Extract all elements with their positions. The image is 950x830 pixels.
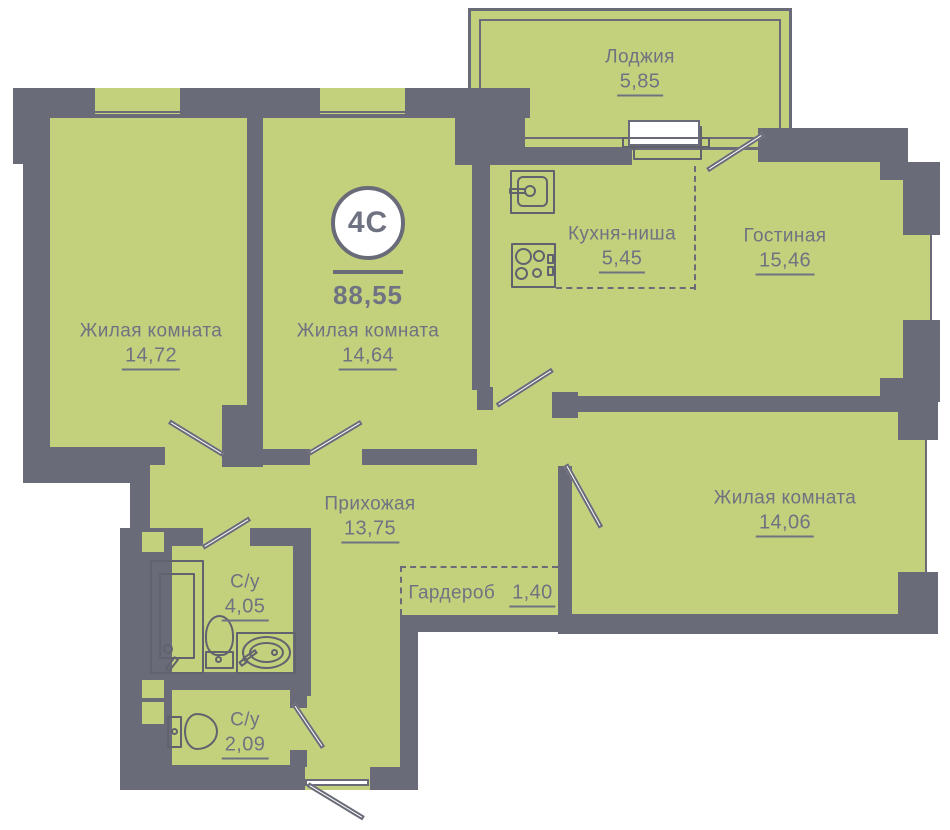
wall-outer-top xyxy=(13,88,530,118)
window-sill-line xyxy=(95,111,180,113)
wall-kitchen-left xyxy=(472,155,490,390)
room-area: 14,72 xyxy=(122,344,180,371)
shaft-niche xyxy=(142,702,164,724)
window-living xyxy=(903,235,932,320)
toilet-button xyxy=(215,656,222,663)
wall-under-loggia xyxy=(490,148,632,165)
room-name: Жилая комната xyxy=(714,487,856,511)
room-name: Жилая комната xyxy=(297,320,439,344)
room-area: 13,75 xyxy=(341,517,399,544)
loggia-appliance-icon xyxy=(628,120,700,146)
wall-bathroom-divider xyxy=(150,672,310,690)
stove-burner xyxy=(533,250,545,262)
wall-bathroom-top-right xyxy=(250,528,311,546)
room-area: 14,64 xyxy=(339,344,397,371)
loggia-appliance-line xyxy=(630,137,698,139)
kitchen-niche-dashed-right xyxy=(694,166,696,290)
room-label-bathroom: С/у 4,05 xyxy=(222,571,269,622)
wall-outer-bottom-right xyxy=(370,767,418,790)
room-area: 15,46 xyxy=(756,249,814,276)
wall-living-bedroom3 xyxy=(556,396,905,412)
wall-outer-left-upper xyxy=(13,88,50,164)
room-label-bedroom2: Жилая комната 14,64 xyxy=(297,320,439,371)
wall-outer-left xyxy=(23,160,50,450)
wall-wardrobe-bottom xyxy=(400,615,560,632)
wall-kitchen-pillar xyxy=(477,387,493,410)
washbasin-drain xyxy=(271,649,278,656)
room-name: С/у xyxy=(222,709,269,733)
stove-knob xyxy=(547,266,554,276)
window-outer-gap xyxy=(927,440,938,572)
wall-bedroom-divider xyxy=(247,118,263,410)
shaft-niche xyxy=(142,680,164,698)
room-area: 5,45 xyxy=(599,247,646,274)
room-area: 4,05 xyxy=(222,595,269,622)
room-name: Лоджия xyxy=(605,46,675,70)
room-label-living: Гостиная 15,46 xyxy=(744,225,827,276)
room-area: 2,09 xyxy=(222,733,269,760)
room-label-loggia: Лоджия 5,85 xyxy=(605,46,675,97)
room-label-toiletroom: С/у 2,09 xyxy=(222,709,269,760)
stove-burner xyxy=(515,248,532,265)
room-name: Жилая комната xyxy=(80,320,222,344)
badge-divider-line xyxy=(333,270,403,274)
room-name: Гостиная xyxy=(744,225,827,249)
room-label-bedroom3: Жилая комната 14,06 xyxy=(714,487,856,538)
room-area: 5,85 xyxy=(617,70,664,97)
wall-bedroom2-right xyxy=(470,118,490,158)
floor-plan: Лоджия 5,85 Кухня-ниша 5,45 Гостиная 15,… xyxy=(0,0,950,830)
room-label-hallway: Прихожая 13,75 xyxy=(324,493,415,544)
apartment-type-badge: 4С 88,55 xyxy=(318,186,418,311)
wall-hallway-top xyxy=(362,449,477,465)
shaft-niche xyxy=(142,532,164,552)
room-name: Кухня-ниша xyxy=(568,223,676,247)
wall-toiletroom-stub-bottom xyxy=(290,750,307,767)
type-circle: 4С xyxy=(331,186,405,260)
bathtub-drain xyxy=(163,644,173,654)
wall-left-lower xyxy=(130,483,150,533)
wall-bedroom3-bottom xyxy=(558,614,938,634)
window-outer-gap xyxy=(932,235,940,320)
stove-burner xyxy=(515,267,528,280)
room-label-bedroom1: Жилая комната 14,72 xyxy=(80,320,222,371)
wall-bedroom-divider-stub xyxy=(222,405,263,467)
room-area: 14,06 xyxy=(756,511,814,538)
stove-burner xyxy=(532,268,542,278)
room-name: Прихожая xyxy=(324,493,415,517)
room-label-wardrobe: Гардероб 1,40 xyxy=(408,581,555,608)
wall-bedroom1-bottom xyxy=(50,447,165,465)
stove-knob xyxy=(547,254,554,264)
window-bedroom3 xyxy=(898,440,925,572)
kitchen-niche-dashed-bottom xyxy=(556,287,696,289)
toilet2-button xyxy=(171,728,178,735)
room-area: 1,40 xyxy=(509,581,556,608)
wall-bedroom2-bottom xyxy=(263,449,310,465)
wall-living-top xyxy=(758,128,908,162)
type-label: 4С xyxy=(348,206,388,240)
kitchen-faucet-arm xyxy=(509,188,526,194)
window-sill-line xyxy=(320,111,405,113)
wall-pillar-bedroom3-door xyxy=(552,392,578,418)
wall-corridor-right xyxy=(400,615,418,785)
room-name: Гардероб xyxy=(408,582,495,606)
room-name: С/у xyxy=(222,571,269,595)
room-label-kitchen: Кухня-ниша 5,45 xyxy=(568,223,676,274)
total-area-value: 88,55 xyxy=(318,280,418,311)
wall-bedroom3-left xyxy=(558,466,572,634)
